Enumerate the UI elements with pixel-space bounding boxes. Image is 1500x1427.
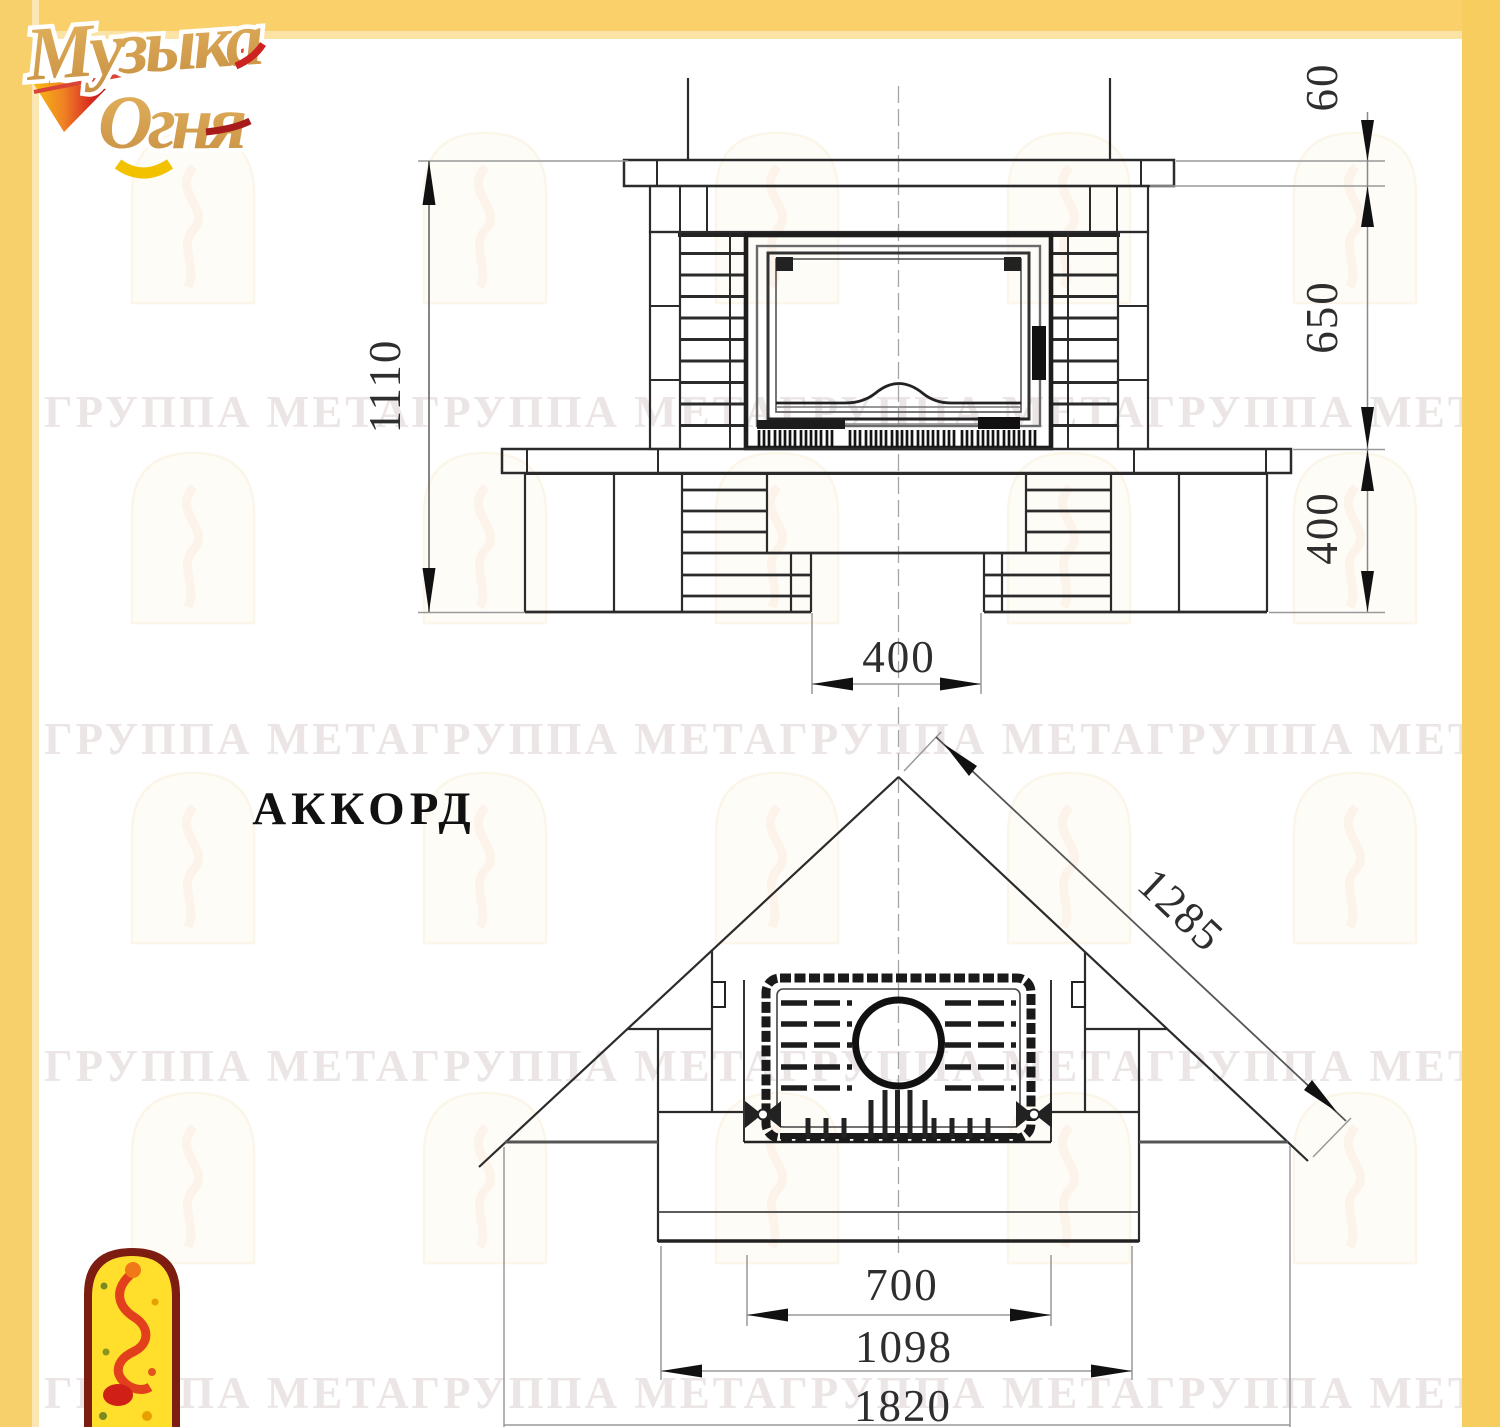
svg-text:ГРУППА МЕТАГРУППА МЕТАГРУППА М: ГРУППА МЕТАГРУППА МЕТАГРУППА МЕТАГРУППА … xyxy=(44,1368,1500,1418)
svg-text:АККОРД: АККОРД xyxy=(252,783,476,835)
svg-text:650: 650 xyxy=(1297,280,1347,354)
svg-text:ГРУППА МЕТАГРУППА МЕТАГРУППА М: ГРУППА МЕТАГРУППА МЕТАГРУППА МЕТАГРУППА … xyxy=(44,1041,1500,1091)
svg-text:1098: 1098 xyxy=(855,1322,953,1372)
svg-text:ГРУППА МЕТАГРУППА МЕТАГРУППА М: ГРУППА МЕТАГРУППА МЕТАГРУППА МЕТАГРУППА … xyxy=(44,714,1500,764)
svg-text:ГРУППА МЕТАГРУППА МЕТАГРУППА М: ГРУППА МЕТАГРУППА МЕТАГРУППА МЕТАГРУППА … xyxy=(44,387,1500,437)
svg-text:1820: 1820 xyxy=(854,1381,952,1427)
svg-text:1110: 1110 xyxy=(360,339,410,434)
svg-text:700: 700 xyxy=(865,1260,939,1310)
svg-text:400: 400 xyxy=(1297,491,1347,565)
svg-text:60: 60 xyxy=(1297,63,1347,112)
svg-text:Огня: Огня xyxy=(98,81,245,165)
svg-text:400: 400 xyxy=(862,632,936,682)
